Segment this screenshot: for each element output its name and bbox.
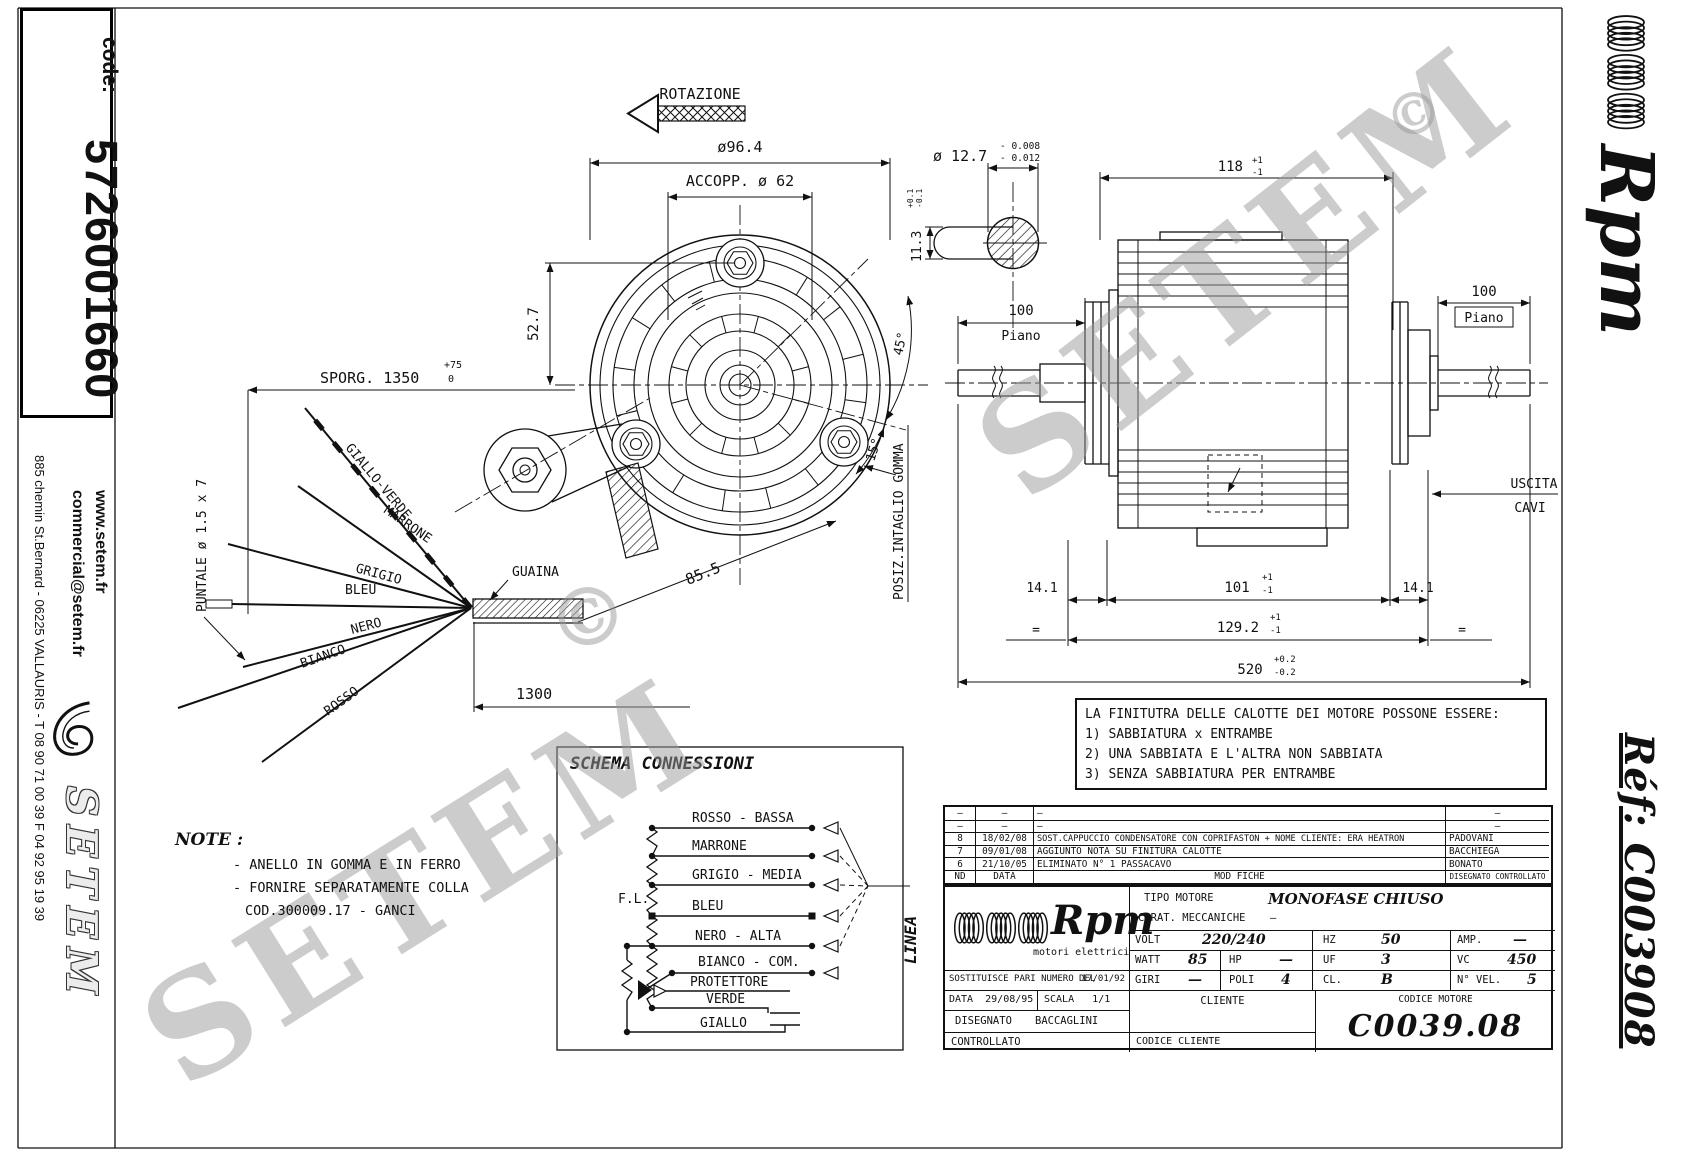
cl-value: B <box>1381 972 1393 988</box>
sostituisce-date: 17/01/92 <box>1082 974 1125 984</box>
finish-line-2: 2) UNA SABBIATA E L'ALTRA NON SABBIATA <box>1085 745 1537 765</box>
nvel-value: 5 <box>1527 972 1537 988</box>
amp-label: AMP. <box>1457 934 1482 946</box>
wire-rosso: ROSSO <box>322 684 363 719</box>
rev-header-nd: ND <box>945 870 975 883</box>
shaft-width-text: 11.3 <box>910 231 925 262</box>
nvel-label: N° VEL. <box>1457 974 1501 986</box>
controllato-cell: CONTROLLATO <box>945 1032 1129 1052</box>
rev-nd: 7 <box>945 845 975 858</box>
cl-label: CL. <box>1323 974 1342 986</box>
schema-connessioni: SCHEMA CONNESSIONI <box>557 747 920 1050</box>
dim-100l-text: 100 <box>1008 303 1033 319</box>
dim-129-tol-bottom: -1 <box>1270 626 1281 636</box>
piano-left-text: Piano <box>1001 329 1040 344</box>
rpm-logo-subtitle: motori elettrici <box>1033 947 1129 958</box>
rev-name: PADOVANI <box>1445 832 1549 845</box>
hz-label: HZ <box>1323 934 1336 946</box>
hp-value: — <box>1279 952 1293 968</box>
dim-520-tol-top: +0.2 <box>1274 655 1296 665</box>
rev-name: BONATO <box>1445 857 1549 870</box>
guaina-text: GUAINA <box>512 565 559 580</box>
rev-mod: AGGIUNTO NOTA SU FINITURA CALOTTE <box>1033 845 1445 858</box>
note-title: NOTE : <box>175 830 515 850</box>
finish-line-3: 3) SENZA SABBIATURA PER ENTRAMBE <box>1085 765 1537 785</box>
uf-label: UF <box>1323 954 1336 966</box>
poli-label: POLI <box>1229 974 1254 986</box>
disegnato-cell: DISEGNATO BACCAGLINI <box>945 1010 1129 1032</box>
volt-cell: VOLT 220/240 <box>1129 930 1312 950</box>
watt-cell: WATT 85 <box>1129 950 1220 970</box>
schema-nero: NERO - ALTA <box>695 929 781 944</box>
rev-mod: – <box>1033 807 1445 820</box>
cavi-text: CAVI <box>1514 501 1545 516</box>
giri-label: GIRI <box>1135 974 1160 986</box>
drawing-sheet: ROTAZIONE ø96.4 ACCOPP. ø 62 52.7 <box>0 0 1683 1153</box>
ref-code-text: Réf: C003908 <box>1615 733 1662 1048</box>
shaft-detail: ø 12.7 - 0.008 - 0.012 11.3 +0.1 -0.1 <box>906 141 1047 328</box>
scala-label: SCALA <box>1044 994 1074 1005</box>
hz-value: 50 <box>1381 932 1400 948</box>
dim-118-tol-top: +1 <box>1252 156 1263 166</box>
sporg-text: SPORG. 1350 <box>320 369 419 387</box>
note-block: NOTE : - ANELLO IN GOMMA E IN FERRO - FO… <box>175 830 515 919</box>
scala-cell: SCALA 1/1 <box>1037 990 1129 1010</box>
dim-141l-text: 14.1 <box>1026 581 1057 596</box>
codice-motore-value: C0039.08 <box>1348 1009 1524 1044</box>
watt-value: 85 <box>1188 952 1207 968</box>
setem-logo-icon <box>36 698 110 782</box>
codice-motore-label: CODICE MOTORE <box>1398 994 1472 1005</box>
amp-cell: AMP. — <box>1450 930 1555 950</box>
dim-855-text: 85.5 <box>683 558 723 588</box>
rev-date: – <box>975 820 1033 833</box>
cable-fan: GIALLO-VERDE MARRONE GRIGIO BLEU NERO BI… <box>178 360 690 762</box>
setem-logo-text: SETEM <box>50 786 106 1056</box>
dim-accopp-text: ACCOPP. ø 62 <box>686 172 794 190</box>
finish-note-box: LA FINITUTRA DELLE CALOTTE DEI MOTORE PO… <box>1075 698 1547 790</box>
rev-nd: 8 <box>945 832 975 845</box>
tipo-cell: TIPO MOTORE MONOFASE CHIUSO CARAT. MECCA… <box>1129 887 1555 930</box>
dim-101-tol-bottom: -1 <box>1262 586 1273 596</box>
schema-title: SCHEMA CONNESSIONI <box>570 754 755 774</box>
title-logo-cell: Rpm motori elettrici <box>945 887 1129 970</box>
disegnato-value: BACCAGLINI <box>1035 1015 1098 1027</box>
data-value: 29/08/95 <box>985 994 1033 1005</box>
uscita-text: USCITA <box>1511 477 1558 492</box>
hz-cell: HZ 50 <box>1312 930 1450 950</box>
rev-nd: 6 <box>945 857 975 870</box>
poli-value: 4 <box>1281 972 1291 988</box>
angle-45-text: 45° <box>891 331 911 357</box>
dim-101-tol-top: +1 <box>1262 573 1273 583</box>
vc-label: VC <box>1457 954 1470 966</box>
codice-cliente-cell: CODICE CLIENTE <box>1129 1032 1315 1052</box>
sporg-tol-bottom: 0 <box>448 374 454 385</box>
revision-table: – – – – – – – – 8 18/02/08 SOST.CAPPUCCI… <box>943 805 1553 885</box>
schema-verde: VERDE <box>706 992 745 1007</box>
dim-129-tol-top: +1 <box>1270 613 1281 623</box>
finish-line-0: LA FINITUTRA DELLE CALOTTE DEI MOTORE PO… <box>1085 705 1537 725</box>
dim-1300-text: 1300 <box>516 685 552 703</box>
rpm-coils-icon <box>1594 14 1658 130</box>
wire-bleu: BLEU <box>345 583 376 598</box>
controllato-label: CONTROLLATO <box>951 1036 1021 1048</box>
dim-96-text: ø96.4 <box>717 138 762 156</box>
shaft-dia-text: ø 12.7 <box>933 147 987 165</box>
code-value: 5726001660 <box>71 139 127 417</box>
dim-101-text: 101 <box>1224 580 1249 596</box>
cl-cell: CL. B <box>1312 970 1450 990</box>
rev-date: 09/01/08 <box>975 845 1033 858</box>
watt-label: WATT <box>1135 954 1160 966</box>
sostituisce-cell: SOSTITUISCE PARI NUMERO DEL 17/01/92 <box>945 970 1129 990</box>
rev-nd: – <box>945 807 975 820</box>
poli-cell: POLI 4 <box>1220 970 1312 990</box>
schema-linea: LINEA <box>901 916 920 964</box>
rev-date: 21/10/05 <box>975 857 1033 870</box>
rev-date: 18/02/08 <box>975 832 1033 845</box>
rev-name: BACCHIEGA <box>1445 845 1549 858</box>
hp-cell: HP — <box>1220 950 1312 970</box>
puntale-text: PUNTALE ø 1.5 x 7 <box>195 479 210 612</box>
volt-value: 220/240 <box>1202 932 1266 948</box>
carat-value: — <box>1270 912 1276 924</box>
gomma-note-text: POSIZ.INTAGLIO GOMMA <box>892 443 907 600</box>
schema-bianco: BIANCO - COM. <box>698 955 800 970</box>
title-block: Rpm motori elettrici SOSTITUISCE PARI NU… <box>943 885 1553 1050</box>
rev-mod: – <box>1033 820 1445 833</box>
code-box: code: 5726001660 <box>20 8 113 418</box>
rev-header-name: DISEGNATO CONTROLLATO <box>1445 870 1549 883</box>
uf-value: 3 <box>1381 952 1391 968</box>
ref-code: Réf: C003908 <box>1600 733 1662 1068</box>
equal-right: = <box>1458 623 1466 638</box>
sporg-tol-top: +75 <box>444 360 462 371</box>
finish-line-1: 1) SABBIATURA x ENTRAMBE <box>1085 725 1537 745</box>
rotation-label: ROTAZIONE <box>659 85 740 103</box>
nvel-cell: N° VEL. 5 <box>1450 970 1555 990</box>
codice-motore-cell: CODICE MOTORE C0039.08 <box>1315 990 1555 1052</box>
dim-118-text: 118 <box>1218 159 1243 175</box>
equal-left: = <box>1032 623 1040 638</box>
dim-100r-text: 100 <box>1471 284 1496 300</box>
schema-bleu: BLEU <box>692 899 723 914</box>
data-label: DATA <box>949 994 973 1005</box>
dim-520-text: 520 <box>1237 662 1262 678</box>
schema-fl: F.L. <box>618 892 649 907</box>
volt-label: VOLT <box>1135 934 1160 946</box>
cliente-label: CLIENTE <box>1200 995 1244 1007</box>
rev-nd: – <box>945 820 975 833</box>
schema-giallo: GIALLO <box>700 1016 747 1031</box>
rev-name: – <box>1445 807 1549 820</box>
guaina-sheath <box>473 599 583 618</box>
note-line-2: - FORNIRE SEPARATAMENTE COLLA <box>233 880 515 896</box>
dim-129-text: 129.2 <box>1217 620 1259 636</box>
uf-cell: UF 3 <box>1312 950 1450 970</box>
piano-right-text: Piano <box>1464 311 1503 326</box>
cliente-cell: CLIENTE <box>1129 990 1315 1032</box>
giri-value: — <box>1188 972 1202 988</box>
wire-giallo-verde: GIALLO-VERDE <box>342 441 414 523</box>
rpm-logo-script: Rpm <box>1589 144 1663 336</box>
dim-520-tol-bottom: -0.2 <box>1274 668 1296 678</box>
dim-96-lines <box>590 158 890 240</box>
sostituisce-label: SOSTITUISCE PARI NUMERO DEL <box>949 974 1095 984</box>
note-line-1: - ANELLO IN GOMMA E IN FERRO <box>233 857 515 873</box>
amp-value: — <box>1513 932 1527 948</box>
cable-stub <box>606 463 658 558</box>
hp-label: HP <box>1229 954 1242 966</box>
dim-527-lines <box>545 263 735 385</box>
tipo-value: MONOFASE CHIUSO <box>1268 890 1443 908</box>
shaft-dia-tol-top: - 0.008 <box>1000 141 1040 152</box>
shaft-width-tol-top: +0.1 <box>906 189 915 208</box>
shaft-dia-tol-bottom: - 0.012 <box>1000 153 1040 164</box>
rpm-logo-corner: Rpm <box>1572 14 1680 336</box>
rev-date: – <box>975 807 1033 820</box>
note-line-3: COD.300009.17 - GANCI <box>245 903 515 919</box>
rev-header-date: DATA <box>975 870 1033 883</box>
dim-527-text: 52.7 <box>526 307 542 341</box>
shaft-width-tol-bottom: -0.1 <box>915 189 924 208</box>
data-cell: DATA 29/08/95 <box>945 990 1037 1010</box>
vc-cell: VC 450 <box>1450 950 1555 970</box>
schema-marrone: MARRONE <box>692 839 747 854</box>
rev-header-mod: MOD FICHE <box>1033 870 1445 883</box>
rev-name: – <box>1445 820 1549 833</box>
schema-rosso: ROSSO - BASSA <box>692 811 794 826</box>
giri-cell: GIRI — <box>1129 970 1220 990</box>
schema-grigio: GRIGIO - MEDIA <box>692 868 802 883</box>
vc-value: 450 <box>1507 952 1536 968</box>
tipo-label: TIPO MOTORE <box>1144 892 1214 904</box>
carat-label: CARAT. MECCANICHE <box>1138 912 1245 924</box>
rpm-coils-icon-small <box>953 903 1049 953</box>
dim-118-tol-bottom: -1 <box>1252 168 1263 178</box>
rev-mod: ELIMINATO N° 1 PASSACAVO <box>1033 857 1445 870</box>
disegnato-label: DISEGNATO <box>955 1015 1012 1027</box>
scala-value: 1/1 <box>1092 994 1110 1005</box>
front-view: ROTAZIONE ø96.4 ACCOPP. ø 62 52.7 <box>455 85 928 622</box>
codice-cliente-label: CODICE CLIENTE <box>1136 1036 1220 1047</box>
schema-protettore: PROTETTORE <box>690 975 768 990</box>
dim-141r-text: 14.1 <box>1402 581 1433 596</box>
rev-mod: SOST.CAPPUCCIO CONDENSATORE CON COPRIFAS… <box>1033 832 1445 845</box>
